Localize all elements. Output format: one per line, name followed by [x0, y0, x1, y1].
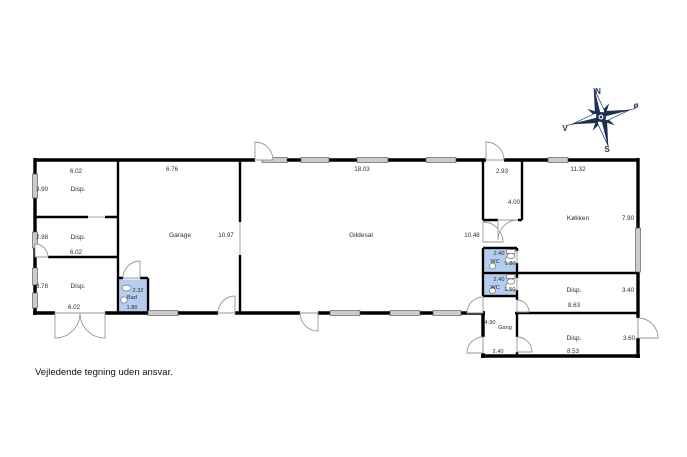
door-arc	[80, 313, 105, 338]
kokken-label: Køkken	[567, 215, 590, 222]
disp-nw-width-dim: 6.02	[70, 168, 83, 175]
door-arc	[255, 142, 273, 160]
disp-sw-height-dim: 3.78	[36, 283, 49, 290]
opening-lines	[55, 160, 638, 353]
fixtures	[121, 250, 515, 304]
disp-e2-label: Disp.	[566, 335, 581, 342]
gang-width-dim: 2.40	[493, 349, 504, 355]
cistern-fixture	[507, 250, 516, 254]
wc2-label: WC	[490, 285, 499, 291]
wet-rooms	[120, 250, 516, 312]
compass-label-south: S	[604, 145, 610, 154]
door-arc	[55, 313, 80, 338]
compass-rose: N ø V S	[559, 79, 643, 155]
gildesal-label: Gildesal	[349, 232, 373, 239]
outer-walls	[33, 158, 640, 358]
window	[426, 158, 456, 163]
bad-width-dim: 1.80	[127, 305, 138, 311]
compass-label-north: N	[595, 87, 601, 96]
disp-sw-label: Disp.	[70, 283, 85, 290]
wc1-height-dim: 1.80	[505, 261, 516, 267]
gang-height-dim: 4.90	[485, 320, 496, 326]
door-arc	[517, 300, 529, 312]
door-arc	[467, 337, 483, 353]
labels: 6.02 3.90 Disp. 2.98 Disp. 6.02 3.78 Dis…	[36, 166, 636, 355]
bad-height-dim: 2.32	[133, 288, 144, 294]
door-arc	[467, 297, 483, 313]
doors	[35, 142, 658, 353]
entre-height-dim: 4.00	[508, 199, 521, 206]
inner-walls	[35, 160, 638, 356]
compass-label-west: V	[562, 124, 568, 133]
compass-star	[559, 79, 643, 155]
floorplan-drawing: 6.02 3.90 Disp. 2.98 Disp. 6.02 3.78 Dis…	[0, 0, 687, 457]
disp-nw-height-dim: 3.90	[36, 186, 49, 193]
door-arc	[638, 318, 658, 338]
door-arc	[123, 261, 140, 278]
disp-w-label: Disp.	[70, 234, 85, 241]
sink-fixture	[507, 253, 515, 258]
disp-e1-width-dim: 8.63	[568, 302, 581, 309]
cistern-fixture	[507, 275, 516, 279]
door-arc	[218, 296, 235, 313]
window	[357, 158, 388, 163]
bad-label: Bad	[127, 295, 137, 301]
disp-e1-label: Disp.	[566, 287, 581, 294]
garage-label: Garage	[169, 232, 191, 239]
sink-fixture	[122, 285, 131, 291]
window	[33, 293, 38, 308]
disp-w-width-dim: 6.02	[70, 249, 83, 256]
window	[636, 228, 641, 272]
gang-label: Gang	[498, 325, 512, 331]
window	[148, 311, 178, 316]
kokken-height-dim: 7.90	[622, 215, 635, 222]
kokken-width-dim: 11.32	[570, 166, 586, 173]
window	[548, 158, 568, 163]
disp-sw-width-dim: 6.02	[68, 304, 81, 311]
sink-fixture	[507, 279, 515, 284]
garage-width-dim: 6.76	[166, 166, 179, 173]
wc1-width-dim: 2.40	[494, 251, 505, 257]
entre-width-dim: 2.93	[496, 168, 509, 175]
disp-e2-height-dim: 3.60	[623, 335, 636, 342]
gildesal-height-dim: 10.48	[464, 232, 480, 239]
garage-height-dim: 10.97	[218, 232, 234, 239]
door-arc	[35, 244, 48, 257]
window	[330, 311, 360, 316]
disclaimer-text: Vejledende tegning uden ansvar.	[35, 367, 173, 378]
gildesal-width-dim: 18.03	[354, 166, 370, 173]
door-arc	[300, 313, 318, 331]
disp-w-height-dim: 2.98	[36, 234, 49, 241]
disp-nw-label: Disp.	[70, 186, 85, 193]
door-arc	[486, 142, 504, 160]
floorplan-page: 6.02 3.90 Disp. 2.98 Disp. 6.02 3.78 Dis…	[0, 0, 687, 457]
window	[433, 311, 461, 316]
wc2-height-dim: 1.50	[505, 287, 516, 293]
disp-e1-height-dim: 3.40	[622, 287, 635, 294]
compass-label-east: ø	[634, 101, 639, 110]
window	[390, 311, 420, 316]
wc1-label: WC	[490, 259, 499, 265]
disp-e2-width-dim: 8.53	[567, 348, 580, 355]
wc2-width-dim: 2.40	[494, 277, 505, 283]
door-arc	[517, 337, 532, 352]
window	[301, 158, 329, 163]
